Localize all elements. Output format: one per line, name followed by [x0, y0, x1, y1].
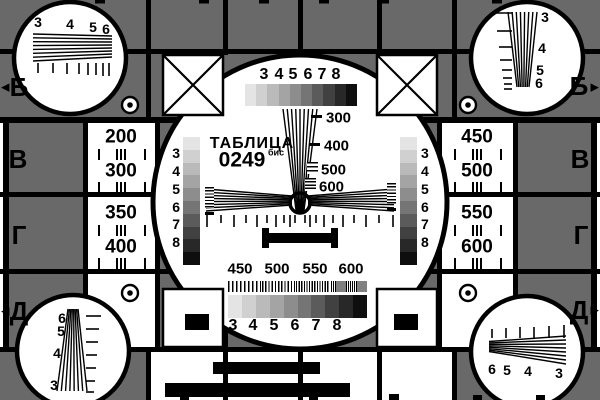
left-strip-label: 7 — [172, 217, 180, 231]
side-cell-label: 350 — [105, 204, 137, 223]
vertical-wedge-mark: 400 — [324, 139, 349, 154]
corner-scale-label: 5 — [503, 363, 511, 377]
left-strip-label: 8 — [172, 235, 180, 249]
vertical-wedge-mark: 500 — [321, 163, 346, 178]
top-scale-label: 6 — [304, 67, 313, 83]
corner-scale-label: 6 — [102, 22, 110, 36]
edge-arrow-right-icon: ▶ — [591, 83, 599, 94]
corner-scale-label: 3 — [50, 378, 58, 392]
bottom-freq-mark: 550 — [302, 262, 327, 277]
title-code-suffix: бис — [268, 149, 284, 158]
top-scale-label: 8 — [332, 67, 341, 83]
bottom-scale-label: 3 — [229, 318, 238, 334]
row-letter-g-right: Г — [574, 222, 589, 248]
tv-test-card: ТАБЛИЦА0249бис34567830040050060033445566… — [0, 0, 600, 400]
left-strip-label: 5 — [172, 182, 180, 196]
bottom-scale-label: 6 — [291, 318, 300, 334]
corner-scale-label: 6 — [535, 76, 543, 90]
corner-scale-label: 4 — [53, 346, 61, 360]
bottom-freq-mark: 600 — [338, 262, 363, 277]
side-cell-label: 300 — [105, 162, 137, 181]
edge-arrow-left-icon: ◀ — [1, 83, 9, 94]
right-strip-label: 5 — [421, 182, 429, 196]
left-strip-label: 6 — [172, 200, 180, 214]
vertical-wedge-mark: 300 — [326, 111, 351, 126]
corner-scale-label: 4 — [524, 364, 532, 378]
side-cell-label: 600 — [461, 238, 493, 257]
edge-arrow-left-icon: ◀ — [1, 307, 9, 318]
vertical-wedge-mark: 600 — [319, 180, 344, 195]
right-strip-label: 7 — [421, 217, 429, 231]
top-scale-label: 3 — [260, 67, 269, 83]
side-cell-label: 550 — [461, 204, 493, 223]
row-letter-g-left: Г — [12, 222, 27, 248]
bottom-freq-mark: 500 — [264, 262, 289, 277]
corner-scale-label: 3 — [555, 366, 563, 380]
corner-scale-label: 6 — [488, 362, 496, 376]
right-strip-label: 3 — [421, 146, 429, 160]
right-strip-label: 6 — [421, 200, 429, 214]
bottom-scale-label: 4 — [249, 318, 258, 334]
corner-scale-label: 5 — [89, 20, 97, 34]
title-code: 0249 — [219, 150, 266, 171]
row-letter-v-right: В — [571, 146, 590, 172]
right-strip-label: 8 — [421, 235, 429, 249]
corner-scale-label: 4 — [66, 17, 74, 31]
side-cell-label: 400 — [105, 238, 137, 257]
top-scale-label: 4 — [275, 67, 284, 83]
row-letter-b-right: Б — [570, 73, 589, 99]
top-scale-label: 5 — [289, 67, 298, 83]
side-cell-label: 200 — [105, 128, 137, 147]
bottom-scale-label: 8 — [333, 318, 342, 334]
corner-scale-label: 4 — [538, 41, 546, 55]
edge-arrow-right-icon: ▶ — [591, 306, 599, 317]
corner-scale-label: 3 — [34, 15, 42, 29]
left-strip-label: 4 — [172, 164, 180, 178]
row-letter-d-left: Д — [10, 298, 29, 324]
corner-scale-label: 5 — [57, 324, 65, 338]
row-letter-d-right: Д — [570, 297, 589, 323]
row-letter-v-left: В — [9, 146, 28, 172]
right-strip-label: 4 — [421, 164, 429, 178]
bottom-freq-mark: 450 — [227, 262, 252, 277]
top-scale-label: 7 — [318, 67, 327, 83]
side-cell-label: 500 — [461, 162, 493, 181]
bottom-scale-label: 7 — [312, 318, 321, 334]
side-cell-label: 450 — [461, 128, 493, 147]
labels-layer: ТАБЛИЦА0249бис34567830040050060033445566… — [0, 0, 600, 400]
row-letter-b-left: Б — [10, 74, 29, 100]
left-strip-label: 3 — [172, 146, 180, 160]
bottom-scale-label: 5 — [270, 318, 279, 334]
corner-scale-label: 3 — [541, 10, 549, 24]
